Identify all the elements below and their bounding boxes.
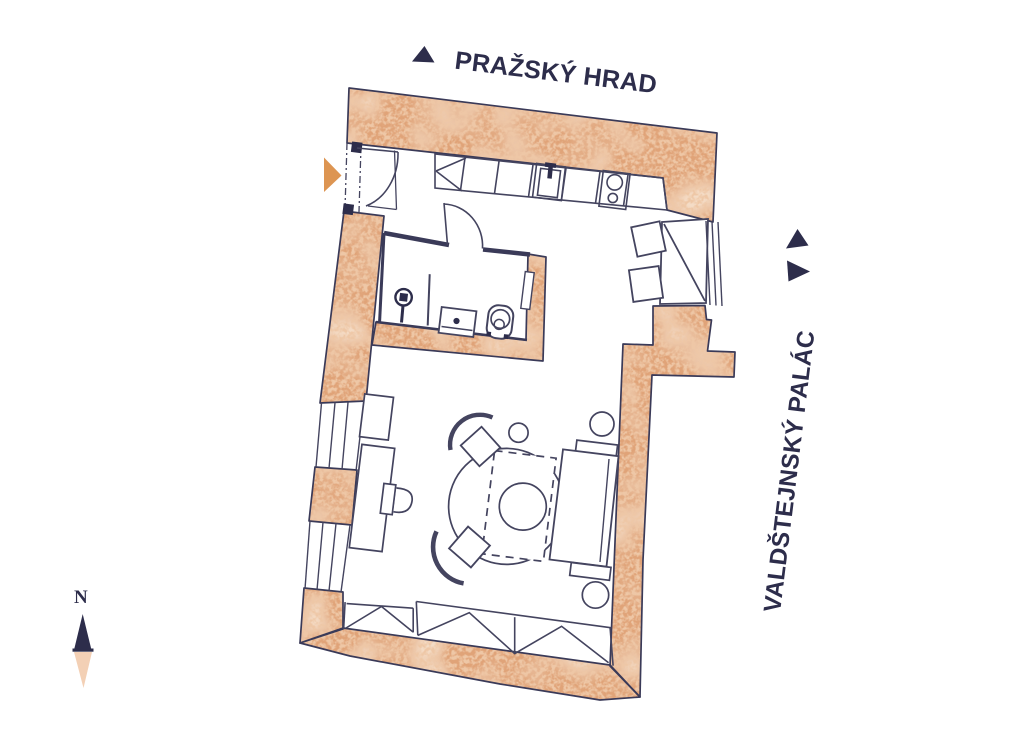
- svg-text:VALDŠTEJNSKÝ PALÁC: VALDŠTEJNSKÝ PALÁC: [758, 329, 820, 614]
- svg-text:PRAŽSKÝ HRAD: PRAŽSKÝ HRAD: [453, 45, 659, 100]
- svg-text:N: N: [74, 587, 88, 608]
